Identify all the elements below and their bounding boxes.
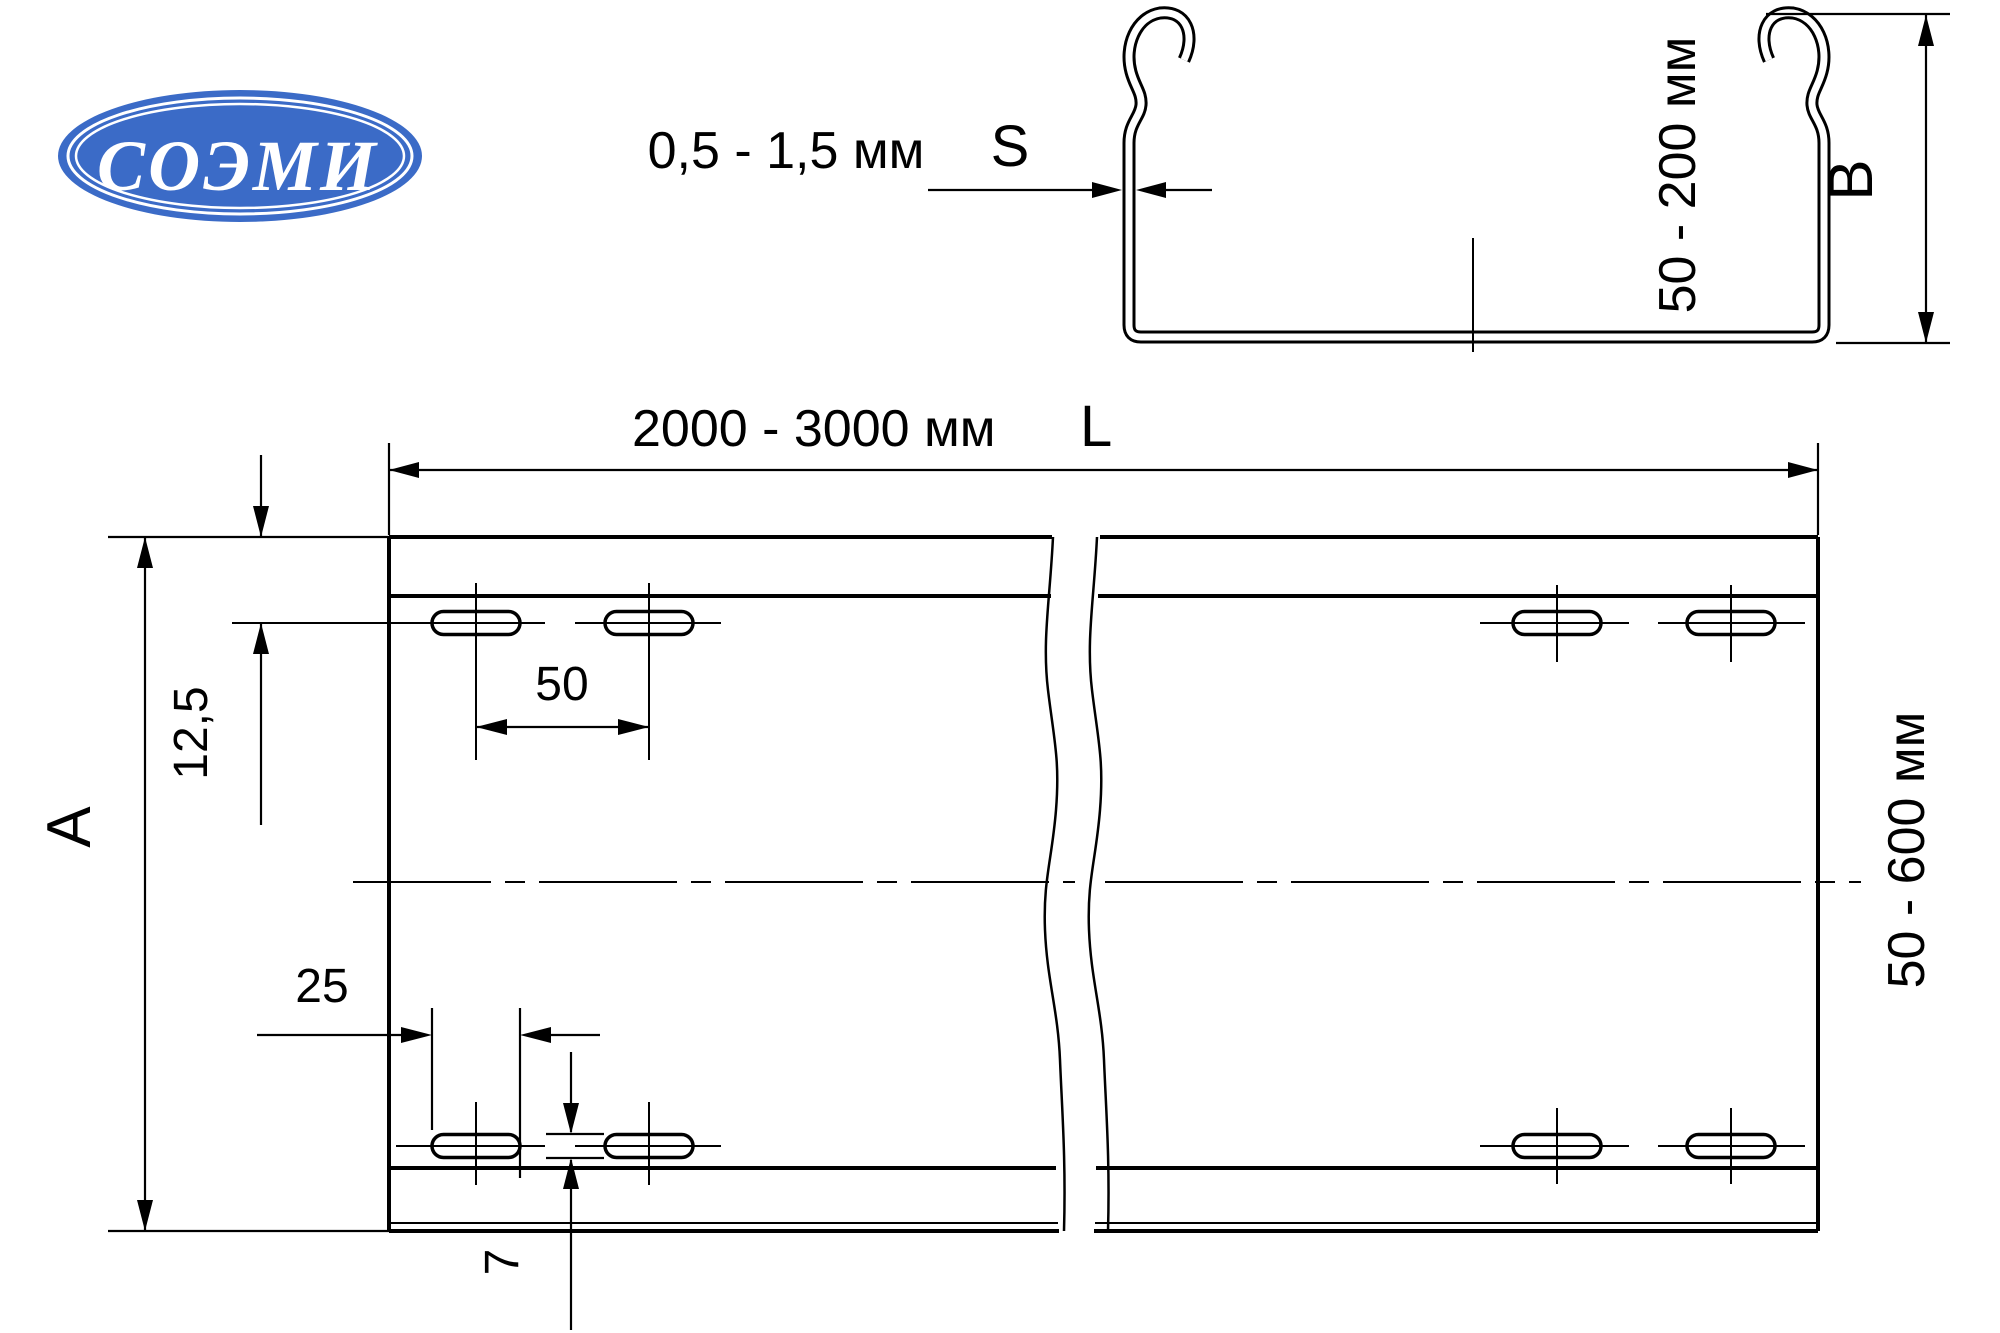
- arrowhead-down-icon: [1918, 312, 1934, 343]
- arrowhead-up-icon: [1918, 15, 1934, 46]
- arrowhead-down-icon: [563, 1103, 579, 1134]
- width-range-value: 50 - 600 мм: [1878, 712, 1936, 989]
- arrowhead-right-icon: [401, 1027, 432, 1043]
- arrowhead-right-icon: [618, 719, 649, 735]
- arrowhead-right-icon: [1788, 462, 1818, 478]
- company-logo: СОЭМИ: [58, 90, 422, 222]
- slot-width-dimension: 7: [476, 1052, 604, 1330]
- cross-section-view: 0,5 - 1,5 мм S 50 - 200 мм B: [648, 13, 1950, 352]
- length-value: 2000 - 3000 мм: [632, 400, 996, 458]
- edge-offset-dimension: 12,5: [165, 455, 269, 825]
- arrowhead-left-icon: [1136, 182, 1166, 198]
- arrowhead-up-icon: [563, 1158, 579, 1189]
- arrowhead-left-icon: [389, 462, 419, 478]
- edge-offset-value: 12,5: [165, 686, 218, 779]
- arrowhead-left-icon: [520, 1027, 551, 1043]
- logo-text: СОЭМИ: [97, 126, 379, 206]
- break-line-left: [1045, 537, 1065, 1231]
- arrowhead-right-icon: [1092, 182, 1122, 198]
- slot-width-value: 7: [476, 1249, 529, 1276]
- slot-pitch-value: 50: [535, 658, 588, 711]
- profile-inner-face: [1129, 13, 1824, 337]
- arrowhead-up-icon: [137, 537, 153, 568]
- slot-center-lines: [232, 623, 1805, 1146]
- break-line-right: [1089, 537, 1109, 1231]
- arrowhead-left-icon: [476, 719, 507, 735]
- slot-center-ticks: [476, 583, 1731, 1185]
- width-symbol: A: [35, 806, 104, 848]
- arrowhead-up-icon: [253, 623, 269, 654]
- arrowhead-down-icon: [253, 506, 269, 537]
- profile-height-dimension: 50 - 200 мм B: [1649, 14, 1950, 343]
- slot-pitch-dimension: 50: [476, 658, 649, 735]
- slot-length-value: 25: [295, 960, 348, 1013]
- profile-height-value: 50 - 200 мм: [1649, 37, 1707, 314]
- tray-top-view: 2000 - 3000 мм L A 50 - 600 мм 12,5: [35, 394, 1936, 1330]
- technical-drawing: СОЭМИ 0,5 - 1,5 мм S 50 - 200 мм B: [0, 0, 2000, 1333]
- tray-outline: [389, 537, 1818, 1231]
- profile-outline: [1129, 13, 1824, 337]
- length-dimension: 2000 - 3000 мм L: [389, 394, 1818, 535]
- profile-height-symbol: B: [1817, 159, 1886, 200]
- width-dimension: A: [35, 537, 389, 1231]
- length-symbol: L: [1080, 394, 1112, 459]
- arrowhead-down-icon: [137, 1200, 153, 1231]
- thickness-symbol: S: [991, 114, 1030, 179]
- drawing-page: СОЭМИ 0,5 - 1,5 мм S 50 - 200 мм B: [0, 0, 2000, 1333]
- thickness-value: 0,5 - 1,5 мм: [648, 122, 925, 180]
